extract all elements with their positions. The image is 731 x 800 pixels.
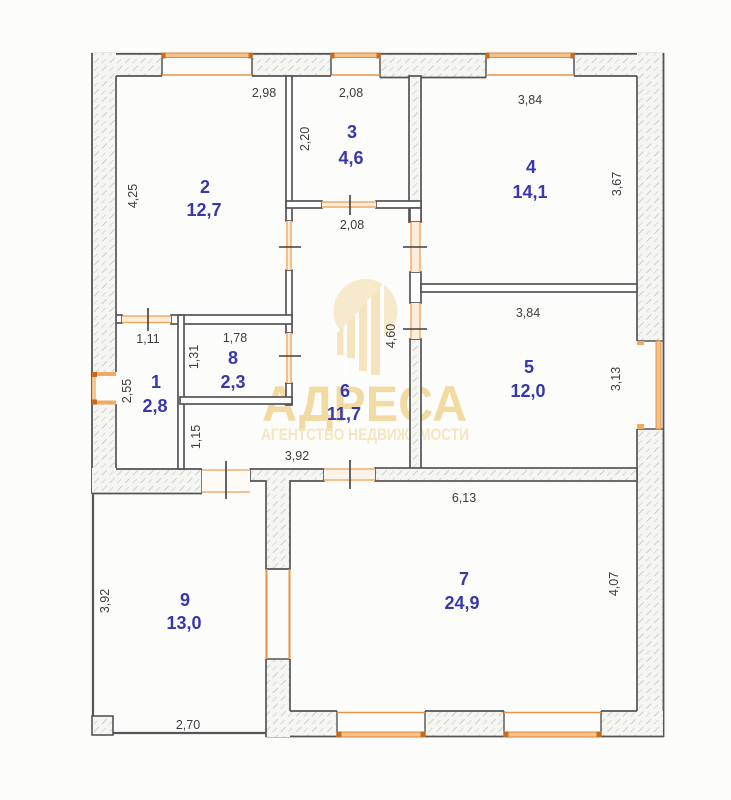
svg-text:2,8: 2,8	[142, 396, 167, 416]
svg-text:1,78: 1,78	[223, 331, 247, 345]
svg-text:3: 3	[347, 122, 357, 142]
svg-text:2,70: 2,70	[176, 718, 200, 732]
svg-text:2,08: 2,08	[340, 218, 364, 232]
svg-text:4,07: 4,07	[607, 572, 621, 596]
svg-text:3,84: 3,84	[516, 306, 540, 320]
svg-text:12,7: 12,7	[186, 200, 221, 220]
svg-text:2,20: 2,20	[298, 127, 312, 151]
svg-text:24,9: 24,9	[444, 593, 479, 613]
svg-text:1: 1	[151, 372, 161, 392]
svg-text:2: 2	[200, 177, 210, 197]
svg-text:АГЕНТСТВО НЕДВИЖИМОСТИ: АГЕНТСТВО НЕДВИЖИМОСТИ	[261, 426, 469, 444]
svg-text:2,55: 2,55	[120, 379, 134, 403]
svg-text:1,31: 1,31	[187, 345, 201, 369]
svg-text:2,3: 2,3	[220, 372, 245, 392]
svg-text:6,13: 6,13	[452, 491, 476, 505]
svg-text:3,92: 3,92	[98, 589, 112, 613]
svg-text:11,7: 11,7	[327, 404, 361, 424]
svg-text:4: 4	[526, 157, 536, 177]
svg-text:14,1: 14,1	[512, 182, 547, 202]
svg-text:4,25: 4,25	[126, 184, 140, 208]
svg-text:8: 8	[228, 348, 238, 368]
svg-text:7: 7	[459, 569, 469, 589]
svg-text:3,13: 3,13	[609, 367, 623, 391]
svg-text:3,67: 3,67	[610, 172, 624, 196]
svg-text:3,84: 3,84	[518, 93, 542, 107]
svg-text:12,0: 12,0	[510, 381, 545, 401]
svg-text:4,6: 4,6	[338, 148, 363, 168]
svg-text:5: 5	[524, 357, 534, 377]
svg-text:3,92: 3,92	[285, 449, 309, 463]
svg-text:2,08: 2,08	[339, 86, 363, 100]
svg-text:1,11: 1,11	[136, 332, 159, 346]
svg-text:6: 6	[340, 381, 350, 401]
svg-text:9: 9	[180, 590, 190, 610]
svg-text:4,60: 4,60	[384, 324, 398, 348]
svg-text:2,98: 2,98	[252, 86, 276, 100]
svg-text:1,15: 1,15	[189, 425, 203, 449]
svg-text:13,0: 13,0	[166, 613, 201, 633]
